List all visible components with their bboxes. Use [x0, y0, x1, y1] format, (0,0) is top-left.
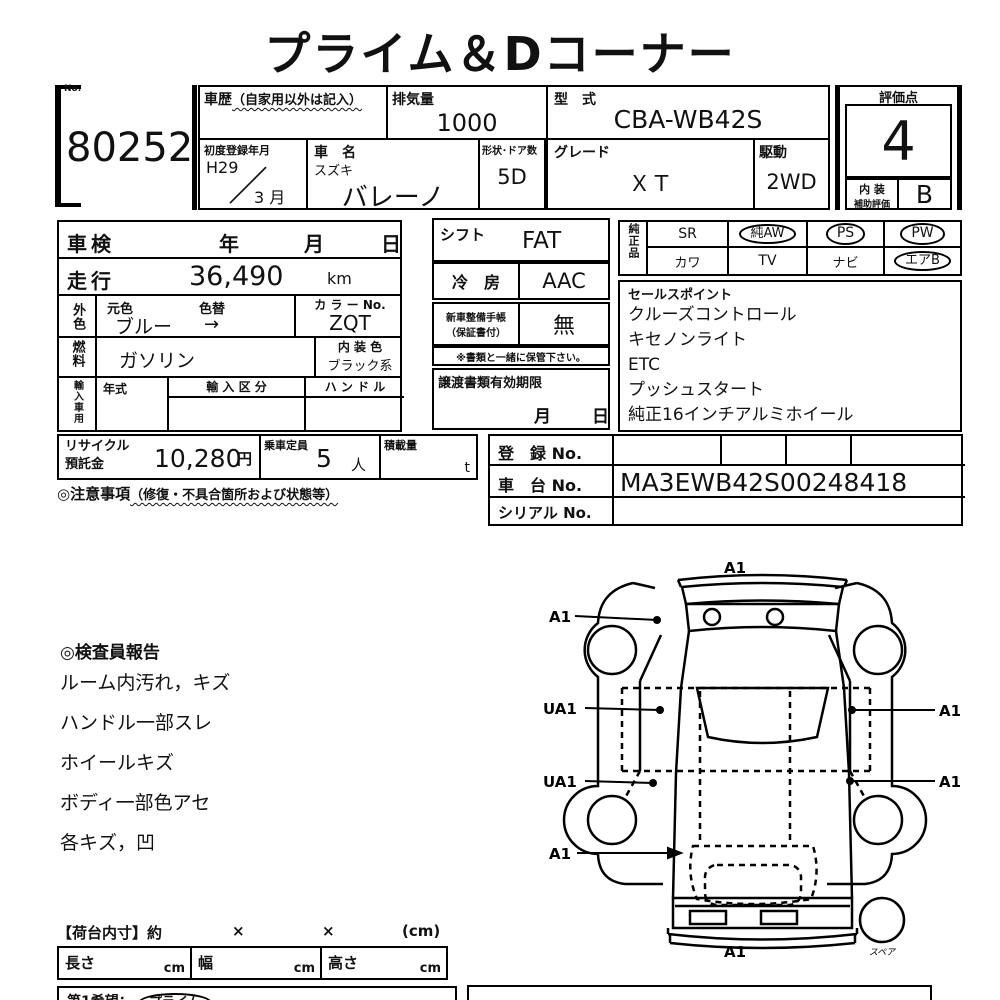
fuel-row: 燃料 ガソリン 内 装 色 ブラック系: [57, 336, 402, 378]
drive-cell: 駆動 2WD: [753, 138, 830, 210]
oem-item-kawa: カワ: [648, 248, 727, 274]
transfer-day: 日: [592, 402, 609, 427]
inspector-report: ◎検査員報告 ルーム内汚れ，キズ ハンドル一部スレ ホイールキズ ボディ一部色ア…: [60, 638, 460, 863]
int-color-label: 内 装 色: [316, 338, 404, 355]
fender-top-edge: [633, 583, 655, 588]
spare-label: スペア: [869, 948, 896, 958]
leader-dot: [650, 780, 656, 786]
sales-point-item: プッシュスタート: [628, 378, 952, 403]
history-label: 車歴: [204, 92, 232, 108]
oem-aw: 純AW: [739, 224, 795, 244]
report-item: 各キズ，凹: [60, 823, 460, 863]
cowl-band: [686, 604, 839, 631]
fuel-label-text: 燃料: [68, 340, 87, 374]
oem-navi: ナビ: [832, 252, 858, 271]
transfer-cell: 譲渡書類有効期限 月 日: [432, 368, 610, 430]
damage-label-ua1-upper: UA1: [543, 700, 577, 718]
cargo-length-unit: cm: [164, 961, 185, 976]
oem-item-airbag: エアB: [883, 248, 960, 274]
handle-cell: ハ ン ド ル: [304, 378, 404, 430]
side-panel-right: [827, 583, 926, 884]
import-class-cell: 輸 入 区 分: [167, 378, 304, 430]
notes-note: （修復・不具合箇所および状態等）: [130, 488, 338, 503]
ext-color-label-text: 外色: [68, 299, 86, 335]
roof-rails-dashed: [700, 691, 790, 843]
load-label: 積載量: [381, 436, 476, 454]
front-bumper-top: [678, 575, 847, 580]
displacement-label: 排気量: [392, 89, 542, 109]
first-choice-value: プライム: [138, 993, 212, 1000]
mileage-value: 36,490: [189, 261, 283, 292]
serial-no-label: シリアル No.: [498, 502, 592, 523]
damage-diagram: A1 A1 UA1 UA1 A1 A1 A1 A1 スペア: [535, 553, 975, 968]
damage-label-right-upper: A1: [939, 702, 961, 720]
car-name-cell: 車 名 スズキ バレーノ: [306, 138, 480, 210]
mileage-row: 走行 36,490 km: [57, 257, 402, 296]
damage-label-front: A1: [724, 559, 746, 577]
notes-line: ◎注意事項（修復・不具合箇所および状態等）: [57, 483, 338, 504]
manual-value: 無: [520, 304, 608, 344]
import-year-label: 年式: [103, 380, 127, 397]
evaluation-box: 評価点 4 内 装 補助評価 B: [835, 85, 962, 210]
load-cell: 積載量 t: [379, 436, 476, 478]
chassis-no-label: 車 台 No.: [498, 472, 582, 496]
windshield: [697, 688, 828, 743]
arrowhead: [668, 848, 681, 858]
chassis-no-row: 車 台 No. MA3EWB42S00248418: [490, 466, 965, 498]
oem-item-aw: 純AW: [727, 222, 806, 248]
bottom-right-box: [467, 985, 932, 1000]
leader-dot: [657, 707, 663, 713]
door-corner-dashed: [625, 771, 865, 798]
sales-point-item: ETC: [628, 353, 952, 378]
manual-label: 新車整備手帳 （保証書付）: [434, 304, 520, 344]
color-no-value: ZQT: [296, 311, 404, 335]
shift-label: シフト: [440, 224, 485, 245]
reg-no-label: 登 録 No.: [498, 440, 582, 464]
history-note: （自家用以外は記入）: [232, 93, 362, 108]
displacement-cell: 排気量 1000: [386, 85, 548, 140]
reg-no-row: 登 録 No.: [490, 436, 965, 466]
recycle-label-line2: 預託金: [65, 456, 129, 474]
interior-label-line2: 補助評価: [847, 197, 897, 210]
model-code-value: CBA-WB42S: [554, 105, 822, 134]
shape-doors-value: 5D: [482, 165, 542, 189]
rear-bumper-arc1: [668, 934, 857, 940]
serial-no-row: シリアル No.: [490, 498, 965, 526]
recycle-row: リサイクル 預託金 10,280 円 乗車定員 5 人 積載量 t: [57, 434, 478, 480]
oem-item-pw: PW: [883, 222, 960, 248]
shape-doors-cell: 形状･ドア数 5D: [478, 138, 546, 210]
leader-ua1-upper: [585, 708, 660, 710]
capacity-unit: 人: [351, 454, 366, 475]
divider: [720, 436, 722, 464]
spare-tire: [860, 898, 904, 942]
recycle-label: リサイクル 預託金: [65, 438, 129, 474]
color-no-cell: カ ラ ー No. ZQT: [294, 296, 404, 336]
oem-label-text: 純正品: [625, 223, 641, 273]
registration-box: 登 録 No. 車 台 No. MA3EWB42S00248418 シリアル N…: [488, 434, 963, 526]
cargo-table: 長さ cm 幅 cm 高さ cm: [57, 946, 448, 980]
manual-label-line2: （保証書付）: [434, 324, 518, 339]
cargo-height-cell: 高さ cm: [320, 948, 446, 978]
ac-label: 冷 房: [434, 264, 520, 298]
mileage-unit: km: [327, 269, 352, 288]
fender-inner-edge: [640, 635, 661, 681]
rear-bumper-arc2: [670, 943, 855, 948]
fuel-value: ガソリン: [119, 346, 195, 373]
grade-label: グレード: [554, 142, 747, 162]
int-color-value: ブラック系: [316, 355, 404, 374]
sales-points-box: セールスポイント クルーズコントロール キセノンライト ETC プッシュスタート…: [618, 280, 962, 432]
import-label-text: 輸入車用: [70, 380, 85, 430]
sales-point-item: クルーズコントロール: [628, 303, 952, 328]
model-code-cell: 型 式 CBA-WB42S: [546, 85, 830, 140]
interior-grade-label: 内 装 補助評価: [845, 178, 899, 210]
oem-pw: PW: [900, 223, 944, 245]
divider: [612, 498, 614, 524]
side-panel-left: [564, 583, 663, 884]
import-row: 輸入車用 年式 輸 入 区 分 ハ ン ド ル: [57, 376, 402, 432]
front-wheel: [588, 626, 636, 674]
notes-label: ◎注意事項: [57, 485, 130, 503]
color-change-arrow: →: [204, 314, 219, 335]
shaken-row: 車検 年 月 日: [57, 220, 402, 259]
front-bumper: [682, 583, 843, 604]
divider: [850, 436, 852, 464]
cargo-width-unit: cm: [294, 961, 315, 976]
recycle-label-line1: リサイクル: [65, 438, 129, 456]
displacement-value: 1000: [392, 109, 542, 137]
door-band-dashed: [622, 688, 870, 771]
drive-label: 駆動: [759, 142, 824, 162]
cargo-x2: ×: [322, 922, 335, 940]
color-row: 外色 元色 色替 ブルー → カ ラ ー No. ZQT: [57, 294, 402, 338]
divider: [785, 436, 787, 464]
cargo-unit: (cm): [402, 922, 440, 940]
cargo-width-label: 幅: [198, 952, 213, 973]
chassis-no-value: MA3EWB42S00248418: [620, 468, 907, 497]
ac-row: 冷 房 AAC: [432, 262, 610, 300]
oem-table: 純正品 SR 純AW PS PW カワ TV ナビ エアB: [618, 220, 962, 276]
grade-value: ＸＴ: [554, 166, 747, 198]
grade-cell: グレード ＸＴ: [546, 138, 755, 210]
car-name-label: 車 名: [314, 142, 472, 162]
interior-label-line1: 内 装: [847, 181, 897, 197]
fuel-label: 燃料: [59, 338, 97, 376]
rear-light-right: [761, 911, 797, 924]
ext-color-label: 外色: [59, 296, 97, 336]
oem-item-sr: SR: [648, 222, 727, 248]
oem-airbag: エアB: [894, 251, 951, 271]
rear-window-dashed: [690, 846, 816, 904]
sales-point-item: キセノンライト: [628, 328, 952, 353]
leader-dot: [847, 778, 853, 784]
mileage-label: 走行: [67, 265, 115, 294]
cargo-length-cell: 長さ cm: [59, 948, 190, 978]
sales-points-label: セールスポイント: [628, 284, 952, 303]
leader-left-top: [575, 616, 657, 620]
oem-ps: PS: [826, 223, 865, 245]
first-reg-month: 3 月: [254, 184, 285, 208]
body-left-edge: [673, 631, 689, 898]
lot-number: 80252: [66, 125, 188, 171]
first-reg-cell: 初度登録年月 H29 ／ 3 月: [198, 138, 308, 210]
sales-point-item: 純正16インチアルミホイール: [628, 403, 952, 428]
cargo-width-cell: 幅 cm: [190, 948, 320, 978]
rear-wheel: [588, 796, 636, 844]
damage-label-left-rear: A1: [549, 845, 571, 863]
divider: [192, 85, 197, 210]
cowl-circle-right: [767, 609, 783, 625]
manual-row: 新車整備手帳 （保証書付） 無: [432, 302, 610, 346]
leader-dot: [654, 617, 660, 623]
damage-label-ua1-lower: UA1: [543, 773, 577, 791]
manual-label-line1: 新車整備手帳: [434, 309, 518, 324]
cargo-title-line: 【荷台内寸】約 × × (cm): [57, 922, 457, 943]
damage-label-left-top: A1: [549, 608, 571, 626]
oem-item-tv: TV: [727, 248, 806, 274]
lot-bracket-bar: [55, 85, 61, 207]
oem-tv: TV: [758, 253, 776, 269]
rear-bumper-ticks: [668, 928, 857, 943]
oem-item-ps: PS: [806, 222, 883, 248]
shape-doors-label: 形状･ドア数: [482, 142, 542, 157]
handle-label: ハ ン ド ル: [306, 378, 404, 398]
car-name-value: バレーノ: [314, 177, 472, 214]
shaken-label: 車検: [67, 228, 115, 257]
shaken-month: 月: [304, 228, 324, 257]
recycle-unit: 円: [237, 448, 252, 469]
rear-light-left: [690, 911, 726, 924]
int-color-cell: 内 装 色 ブラック系: [314, 338, 404, 376]
shift-value: FAT: [522, 228, 561, 254]
shift-cell: シフト FAT: [432, 218, 610, 262]
transfer-label: 譲渡書類有効期限: [434, 370, 608, 393]
capacity-value: 5: [316, 444, 332, 473]
drive-value: 2WD: [759, 170, 824, 194]
load-unit: t: [465, 460, 471, 476]
oem-item-navi: ナビ: [806, 248, 883, 274]
inspector-report-title: ◎検査員報告: [60, 638, 460, 663]
cargo-x1: ×: [232, 922, 245, 940]
orig-color-value: ブルー: [115, 312, 172, 339]
lot-no-label: No.: [64, 84, 81, 94]
auction-sheet: プライム＆Dコーナー No. 80252 車歴（自家用以外は記入） 排気量 10…: [0, 0, 1000, 1000]
divider: [612, 436, 614, 464]
oem-sr: SR: [678, 226, 697, 242]
interior-grade-value: B: [897, 178, 952, 210]
ac-value: AAC: [520, 264, 608, 298]
score-value: 4: [845, 104, 952, 178]
divider: [612, 466, 614, 496]
leader-ua1-lower: [585, 781, 653, 783]
capacity-cell: 乗車定員 5 人: [259, 436, 379, 478]
report-item: ハンドル一部スレ: [60, 703, 460, 743]
report-item: ボディ一部色アセ: [60, 783, 460, 823]
first-choice-row: 第1希望： プライム: [57, 986, 457, 1000]
panel-outline: [564, 583, 663, 884]
transfer-month: 月: [534, 402, 551, 427]
cargo-title: 【荷台内寸】約: [57, 924, 162, 942]
cowl-circle-left: [704, 609, 720, 625]
leader-dot: [849, 707, 855, 713]
page-title: プライム＆Dコーナー: [0, 18, 1000, 84]
report-item: ルーム内汚れ，キズ: [60, 663, 460, 703]
shaken-day: 日: [381, 228, 401, 257]
first-choice-label: 第1希望：: [67, 994, 133, 1000]
cargo-height-unit: cm: [420, 961, 441, 976]
lot-bracket-bottom: [55, 203, 81, 207]
cargo-height-label: 高さ: [328, 952, 358, 973]
import-class-label: 輸 入 区 分: [169, 378, 304, 398]
recycle-value: 10,280: [154, 444, 241, 473]
damage-label-rear: A1: [724, 943, 746, 961]
shaken-year: 年: [219, 228, 239, 257]
damage-label-right-lower: A1: [939, 773, 961, 791]
cargo-length-label: 長さ: [65, 952, 95, 973]
manual-note: ※書類と一緒に保管下さい。: [432, 346, 610, 366]
report-item: ホイールキズ: [60, 743, 460, 783]
history-cell: 車歴（自家用以外は記入）: [198, 85, 388, 140]
oem-label: 純正品: [620, 222, 648, 274]
oem-kawa: カワ: [674, 252, 700, 271]
import-label: 輸入車用: [59, 378, 97, 430]
